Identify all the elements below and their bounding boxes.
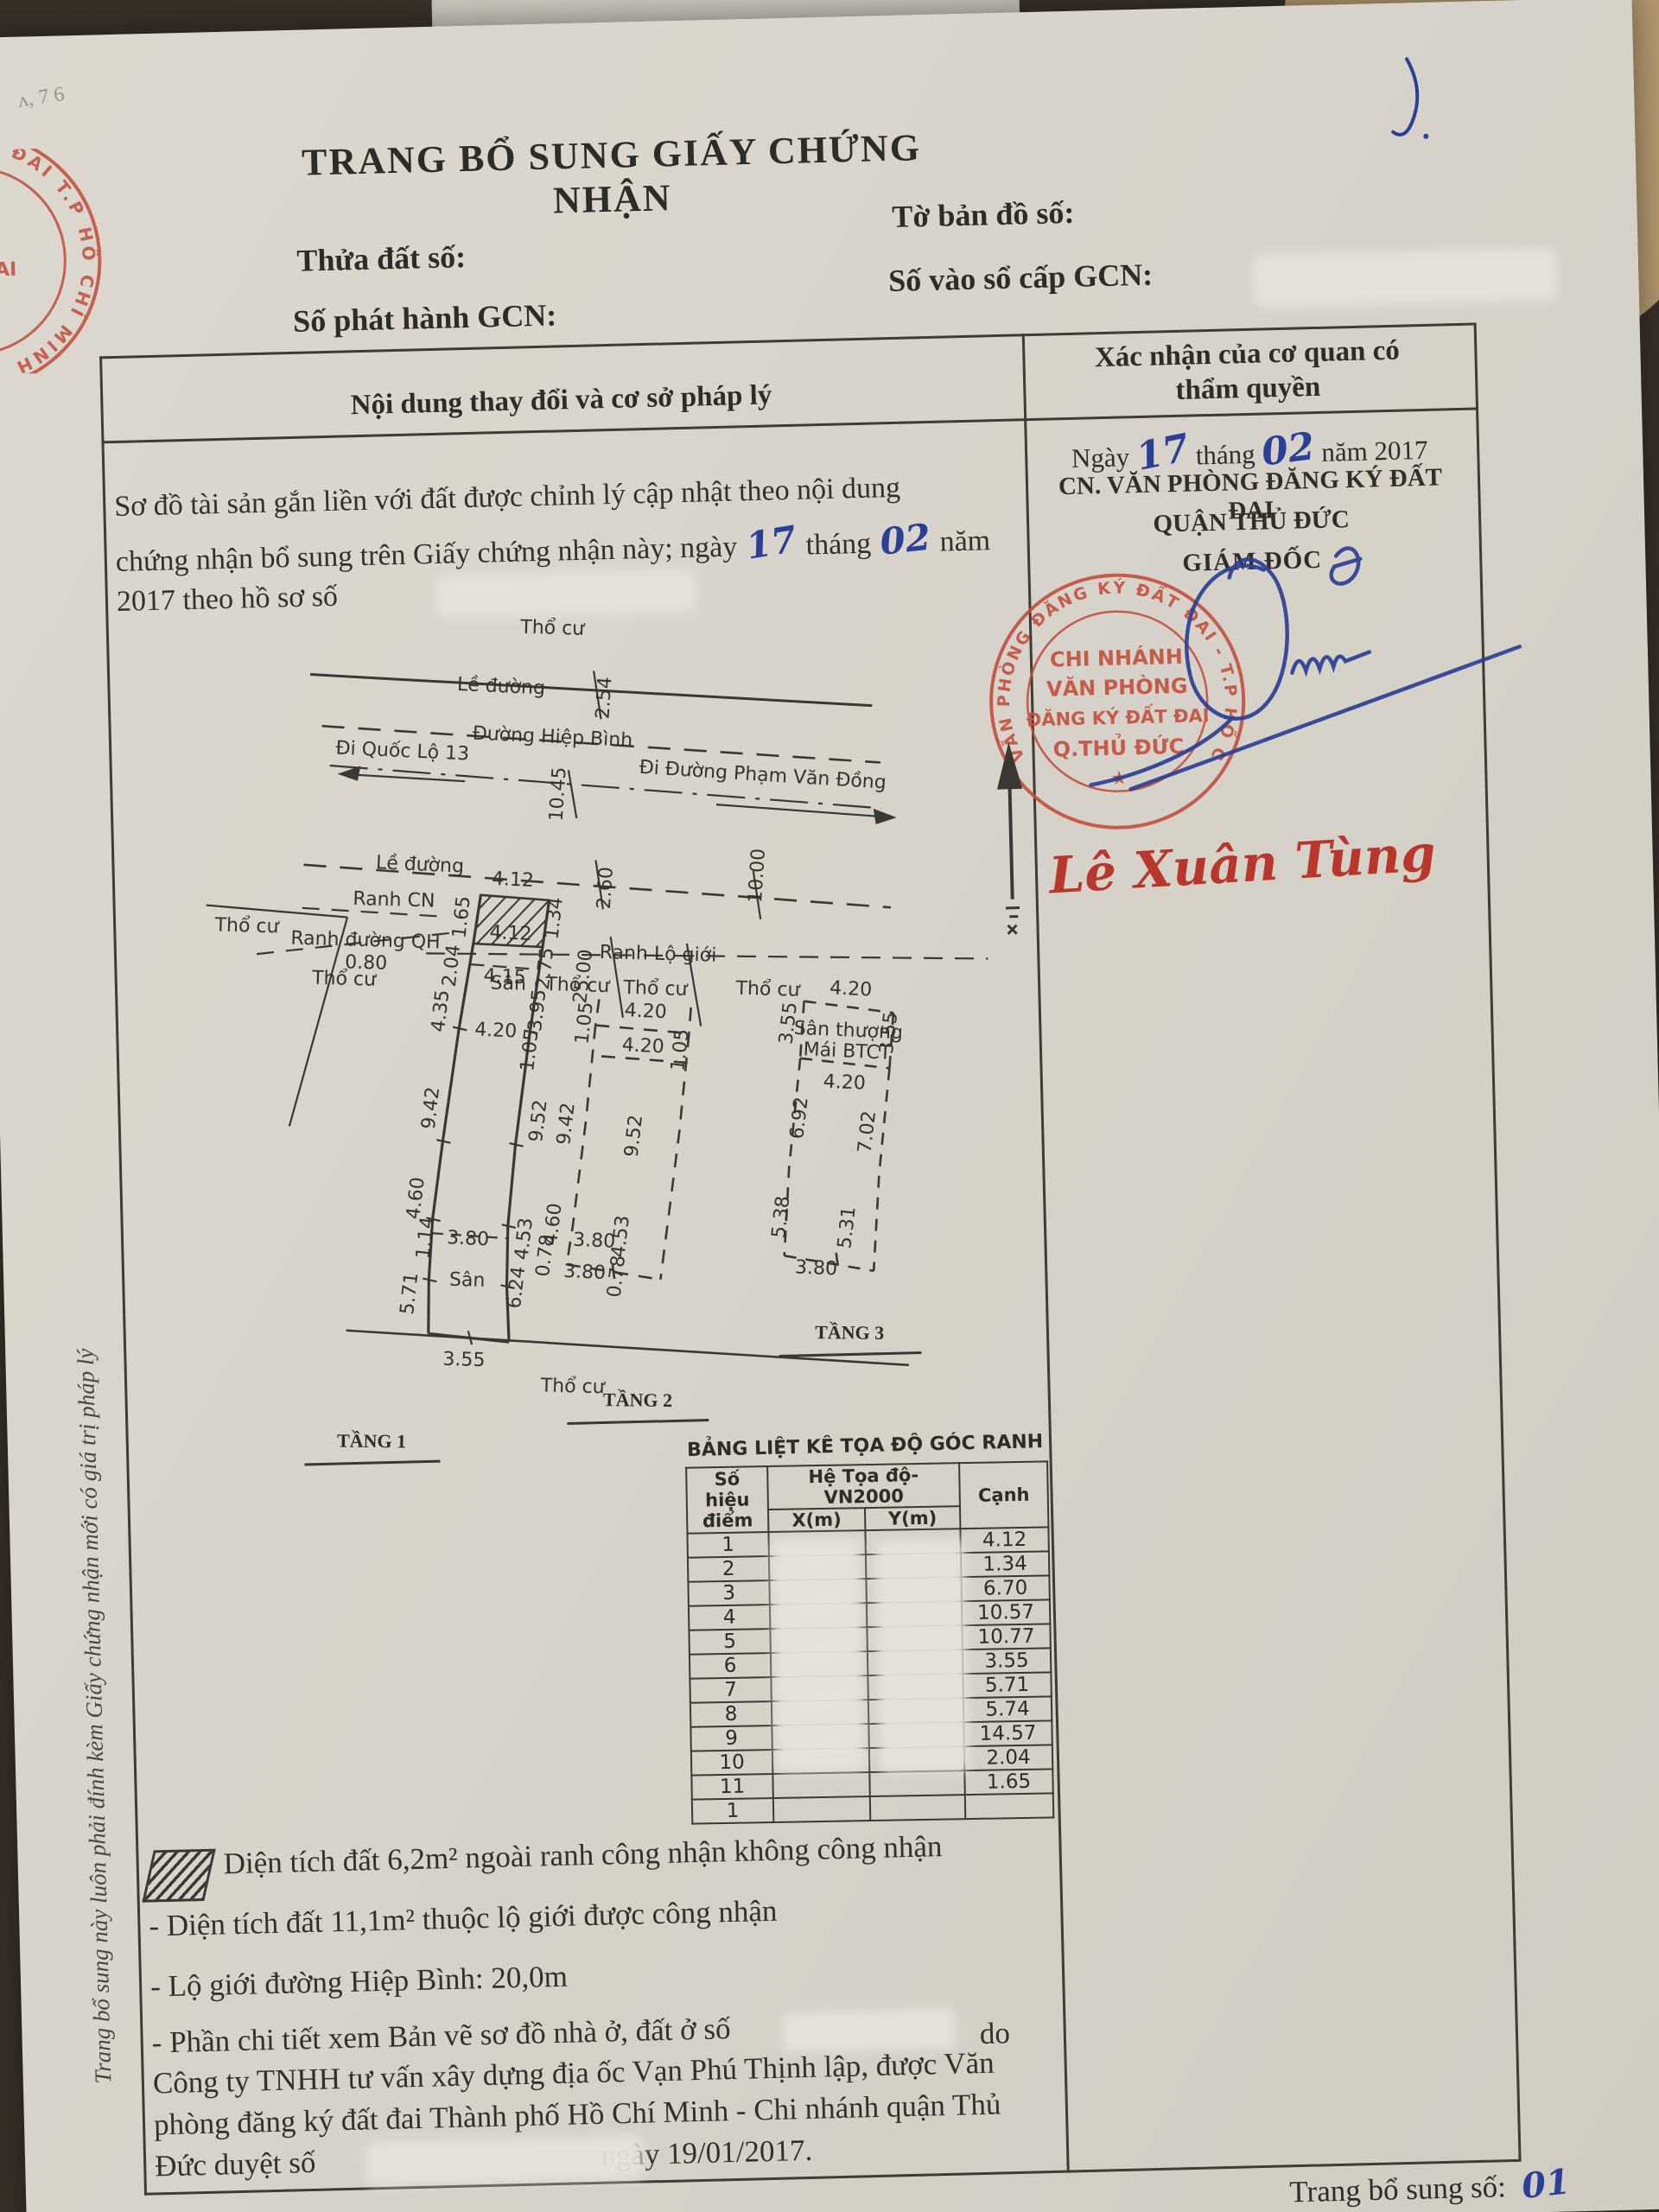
plan-label: TẦNG 3 <box>815 1321 884 1344</box>
note-line-2: - Diện tích đất 11,1m² thuộc lộ giới đượ… <box>149 1894 778 1944</box>
coord-cell-p: 7 <box>690 1677 771 1703</box>
plan-label: Sân <box>490 972 526 995</box>
coord-cell-c: 3.55 <box>963 1648 1051 1674</box>
coord-cell-c: 4.12 <box>960 1527 1048 1553</box>
column-header-content: Nội dung thay đổi và cơ sở pháp lý <box>120 374 1002 428</box>
plan-label: 4.20 <box>624 1000 667 1023</box>
field-book-number: Số vào sổ cấp GCN: <box>888 257 1154 299</box>
coordinate-table-section: BẢNG LIỆT KÊ TỌA ĐỘ GÓC RANH Số hiệuđiểm… <box>683 1431 1056 1826</box>
director-signature <box>1005 518 1565 825</box>
date-text: Ngày <box>1071 442 1130 474</box>
plan-label: Đường Hiệp Bình <box>472 723 633 752</box>
plan-label: Thổ cư <box>311 968 378 991</box>
plan-label: 4.12 <box>489 922 532 945</box>
plan-label: 4.20 <box>474 1019 518 1042</box>
coord-cell-x <box>773 1796 870 1822</box>
plan-label: 2.04 <box>439 944 465 988</box>
coord-cell-p: 5 <box>689 1629 770 1655</box>
plan-label: 10.00 <box>745 848 770 903</box>
plan-label: TẦNG 2 <box>603 1389 672 1411</box>
plan-label: Ranh CN <box>353 888 435 912</box>
plan-label: Thổ cư <box>734 978 801 1001</box>
handwritten-month: 02 <box>878 516 933 563</box>
corner-stamp-line: ẤT ĐAI <box>0 256 17 283</box>
field-parcel-number: Thửa đất số: <box>296 238 467 279</box>
content-paragraph-line1: Sơ đồ tài sản gắn liền với đất được chỉn… <box>114 468 1022 524</box>
coord-cell-p: 8 <box>690 1701 772 1727</box>
plan-label: Thổ cư <box>519 617 586 640</box>
redacted-coordinates-x <box>771 1537 867 1772</box>
plan-label: Thổ cư <box>622 977 689 1001</box>
plan-label: 4.20 <box>823 1071 866 1094</box>
plan-label: Đi Đường Phạm Văn Đồng <box>639 757 887 794</box>
floor-plan-drawing: Thổ cưLề đường2.54Đi Quốc Lộ 13Đường Hiệ… <box>194 597 1019 1471</box>
coord-cell-c: 5.74 <box>963 1696 1052 1722</box>
coord-cell-c: 1.34 <box>961 1551 1049 1577</box>
scanned-photo: ʌ, 7 6 ĐAI T.P HỒ CHÍ MINH NH NG ẤT ĐAI … <box>0 0 1659 2212</box>
corner-red-stamp: ĐAI T.P HỒ CHÍ MINH NH NG ẤT ĐAI ỨC <box>0 146 145 375</box>
plan-label: 3.80 <box>795 1256 838 1280</box>
coord-col-system: Hệ Tọa độ-VN2000 <box>767 1463 960 1510</box>
plan-label: Lề đường <box>375 852 464 878</box>
plan-label: 0.78 <box>532 1233 558 1278</box>
coord-cell-c: 2.04 <box>964 1745 1052 1770</box>
plan-label: 4.53 <box>511 1217 537 1262</box>
coord-col-edge: Cạnh <box>959 1461 1048 1529</box>
coord-col-point-l2: điểm <box>702 1510 753 1531</box>
plan-label: 3.55 <box>442 1349 486 1371</box>
plan-label: Thổ cư <box>544 974 611 997</box>
plan-label: 1.14 <box>412 1216 438 1261</box>
coord-cell-p: 1 <box>687 1532 768 1558</box>
plan-label: 2.54 <box>592 676 616 719</box>
paragraph-text: tháng <box>805 528 871 562</box>
plan-label: 4.12 <box>491 868 534 892</box>
note-line-4: - Phần chi tiết xem Bản vẽ sơ đồ nhà ở, … <box>151 2012 731 2060</box>
plan-label: 4.20 <box>829 977 873 1001</box>
plan-label: 9.42 <box>553 1102 579 1147</box>
plan-label: 1.05 <box>517 1028 543 1073</box>
coord-cell-c <box>965 1793 1053 1819</box>
plan-label: 0.78 <box>604 1254 630 1299</box>
coord-cell-p: 2 <box>688 1556 769 1582</box>
plan-label: 1.65 <box>448 895 474 940</box>
plan-label: 3.95 <box>524 988 550 1033</box>
plan-label: 1.34 <box>541 896 567 941</box>
redacted-value <box>1254 248 1557 308</box>
plan-label: 5.71 <box>397 1271 423 1316</box>
plan-label: 10.45 <box>546 766 571 822</box>
plan-label: 7.02 <box>855 1109 880 1154</box>
coord-cell-p: 4 <box>689 1605 770 1630</box>
plan-label: Ranh Lộ giới <box>599 942 716 967</box>
content-paragraph-line2: chứng nhận bổ sung trên Giấy chứng nhận … <box>115 515 1023 580</box>
coord-cell-p: 1 <box>692 1798 773 1824</box>
coord-cell-c: 1.65 <box>964 1769 1052 1795</box>
coord-cell-y <box>869 1770 965 1796</box>
pencil-mark: ʌ, 7 6 <box>16 83 66 113</box>
note-line-3: - Lộ giới đường Hiệp Bình: 20,0m <box>150 1960 569 2005</box>
coord-col-point-l1: Số hiệu <box>705 1469 750 1511</box>
paragraph-text: năm <box>939 524 990 557</box>
content-paragraph-line3: 2017 theo hồ sơ số <box>117 581 339 619</box>
coord-col-y: Y(m) <box>865 1506 961 1530</box>
plan-label: 3.80 <box>573 1230 616 1253</box>
plan-label: 4.20 <box>621 1034 664 1058</box>
coord-cell-p: 6 <box>690 1653 771 1679</box>
coord-cell-c: 14.57 <box>963 1720 1052 1746</box>
redacted-value <box>366 2136 644 2186</box>
handwritten-day: 17 <box>743 518 800 568</box>
plan-label: 1.05 <box>667 1028 693 1073</box>
plan-label: Lề đường <box>456 674 545 700</box>
footer-label: Trang bổ sung số: <box>1289 2170 1506 2209</box>
coord-row: 1 <box>692 1793 1053 1823</box>
plan-label: 4.60 <box>403 1176 429 1221</box>
note-text: Đức duyệt số <box>155 2145 316 2183</box>
coord-cell-c: 5.71 <box>963 1672 1051 1698</box>
coord-cell-c: 10.57 <box>962 1599 1050 1625</box>
plan-label: 5.38 <box>768 1195 794 1240</box>
plan-label: 3.80 <box>563 1261 607 1284</box>
hatch-legend-icon <box>142 1849 215 1903</box>
plan-label: 6.92 <box>786 1096 812 1141</box>
plan-label: Ranh đường QH <box>290 928 441 954</box>
plan-label: TẦNG 1 <box>337 1430 406 1452</box>
coord-cell-y <box>870 1795 966 1821</box>
page-footer: Trang bổ sung số: 01 <box>1289 2163 1571 2210</box>
coord-cell-p: 3 <box>688 1580 769 1606</box>
coord-cell-x <box>772 1772 869 1798</box>
date-text: tháng <box>1195 439 1255 471</box>
plan-label: 5.31 <box>834 1205 860 1250</box>
redacted-coordinates-y <box>874 1538 970 1773</box>
plan-label: 2.60 <box>594 866 618 909</box>
plan-label: 4.35 <box>428 988 454 1033</box>
field-map-sheet-number: Tờ bản đồ số: <box>892 194 1075 235</box>
plan-label: Đi Quốc Lộ 13 <box>335 737 470 765</box>
redacted-value <box>782 2009 956 2053</box>
handwritten-corner-mark <box>1357 49 1471 173</box>
coord-cell-p: 9 <box>690 1726 772 1751</box>
plan-label: 9.52 <box>621 1114 647 1159</box>
coord-col-point: Số hiệuđiểm <box>686 1466 768 1534</box>
note-line-1: Diện tích đất 6,2m² ngoài ranh công nhận… <box>223 1829 943 1881</box>
plan-label: 3.55 <box>876 1011 902 1056</box>
certificate-supplement-page: ʌ, 7 6 ĐAI T.P HỒ CHÍ MINH NH NG ẤT ĐAI … <box>0 0 1659 2212</box>
coordinate-table: Số hiệuđiểm Hệ Tọa độ-VN2000 Cạnh X(m) Y… <box>685 1460 1054 1824</box>
plan-label: Sân <box>449 1269 486 1292</box>
page-title: TRANG BỔ SUNG GIẤY CHỨNG NHẬN <box>291 125 932 229</box>
coord-cell-p: 11 <box>691 1774 772 1800</box>
coord-cell-c: 6.70 <box>961 1575 1049 1601</box>
field-issue-number: Số phát hành GCN: <box>293 296 557 339</box>
coord-cell-p: 10 <box>691 1750 772 1776</box>
plan-label: 6.24 <box>504 1265 530 1310</box>
coord-col-x: X(m) <box>768 1508 865 1532</box>
date-text: năm 2017 <box>1321 435 1428 467</box>
plan-label: Thổ cư <box>213 914 280 938</box>
plan-label: Thổ cư <box>539 1375 606 1398</box>
handwritten-page-number: 01 <box>1520 2161 1573 2207</box>
plan-label: 3.80 <box>447 1227 490 1250</box>
side-legal-note: Trang bổ sung này luôn phải đính kèm Giấ… <box>68 1189 121 2212</box>
plan-label: 9.42 <box>418 1086 444 1131</box>
plan-label: 9.52 <box>525 1099 551 1144</box>
coord-cell-c: 10.77 <box>962 1624 1050 1649</box>
